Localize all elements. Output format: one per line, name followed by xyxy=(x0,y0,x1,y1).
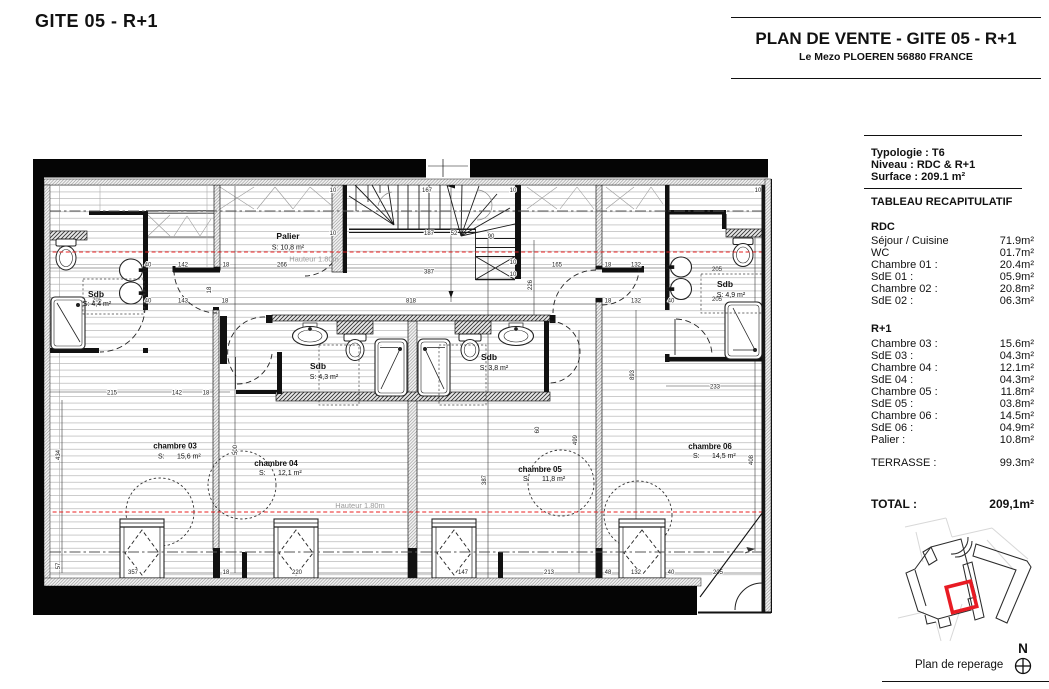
svg-text:S: 4,3 m²: S: 4,3 m² xyxy=(310,374,339,381)
svg-text:10: 10 xyxy=(510,272,517,278)
svg-text:187: 187 xyxy=(424,231,435,237)
svg-text:10: 10 xyxy=(755,188,762,194)
svg-text:Hauteur 1.80m: Hauteur 1.80m xyxy=(335,501,385,510)
svg-text:60: 60 xyxy=(535,426,541,433)
svg-text:18: 18 xyxy=(223,570,230,576)
svg-text:266: 266 xyxy=(277,263,288,269)
svg-text:132: 132 xyxy=(631,263,642,269)
svg-text:S:: S: xyxy=(259,470,266,477)
svg-text:chambre 04: chambre 04 xyxy=(254,459,298,468)
svg-text:165: 165 xyxy=(552,263,563,269)
svg-text:147: 147 xyxy=(458,570,469,576)
svg-text:Sdb: Sdb xyxy=(310,361,326,371)
svg-text:500: 500 xyxy=(233,444,239,455)
svg-text:57: 57 xyxy=(56,562,62,569)
svg-text:48: 48 xyxy=(605,570,612,576)
svg-text:chambre 03: chambre 03 xyxy=(153,442,197,451)
svg-text:S:: S: xyxy=(693,453,700,460)
svg-text:215: 215 xyxy=(107,391,118,397)
svg-text:142: 142 xyxy=(178,263,189,269)
svg-text:132: 132 xyxy=(631,299,642,305)
svg-text:18: 18 xyxy=(203,391,210,397)
svg-text:10: 10 xyxy=(330,188,337,194)
svg-text:18: 18 xyxy=(222,299,229,305)
svg-text:143: 143 xyxy=(178,299,189,305)
svg-text:167: 167 xyxy=(422,188,433,194)
svg-text:18: 18 xyxy=(223,263,230,269)
svg-text:chambre 06: chambre 06 xyxy=(688,442,732,451)
svg-text:387: 387 xyxy=(482,474,488,485)
svg-text:893: 893 xyxy=(630,369,636,380)
svg-text:90: 90 xyxy=(488,234,495,240)
svg-text:40: 40 xyxy=(145,263,152,269)
svg-text:434: 434 xyxy=(56,449,62,460)
svg-text:11,8 m²: 11,8 m² xyxy=(542,476,566,483)
svg-text:18: 18 xyxy=(605,299,612,305)
svg-text:357: 357 xyxy=(128,570,139,576)
svg-text:chambre 05: chambre 05 xyxy=(518,465,562,474)
svg-text:226: 226 xyxy=(528,279,534,290)
svg-text:233: 233 xyxy=(710,385,721,391)
svg-text:S: 4,4 m²: S: 4,4 m² xyxy=(83,301,112,308)
svg-text:S:: S: xyxy=(523,476,530,483)
svg-text:15,6 m²: 15,6 m² xyxy=(177,454,201,461)
svg-text:40: 40 xyxy=(668,570,675,576)
svg-text:Hauteur 1.80m: Hauteur 1.80m xyxy=(289,255,339,264)
svg-text:S: 3,8 m²: S: 3,8 m² xyxy=(480,365,509,372)
svg-text:142: 142 xyxy=(172,391,183,397)
svg-text:205: 205 xyxy=(712,297,723,303)
svg-text:S:: S: xyxy=(158,454,165,461)
svg-text:S: 10,8 m²: S: 10,8 m² xyxy=(272,245,305,252)
svg-text:10: 10 xyxy=(510,260,517,266)
svg-text:18: 18 xyxy=(605,263,612,269)
svg-text:408: 408 xyxy=(749,454,755,465)
svg-text:Sdb: Sdb xyxy=(481,352,497,362)
svg-text:499: 499 xyxy=(573,434,579,445)
svg-text:18: 18 xyxy=(207,286,213,293)
svg-text:40: 40 xyxy=(145,299,152,305)
svg-text:220: 220 xyxy=(292,570,303,576)
svg-text:10: 10 xyxy=(330,231,337,237)
svg-text:387: 387 xyxy=(424,270,435,276)
svg-text:52: 52 xyxy=(451,231,458,237)
svg-text:205: 205 xyxy=(712,267,723,273)
svg-text:Palier: Palier xyxy=(276,231,300,241)
svg-text:10: 10 xyxy=(510,188,517,194)
svg-text:818: 818 xyxy=(406,299,417,305)
svg-text:213: 213 xyxy=(544,570,555,576)
svg-text:40: 40 xyxy=(668,299,675,305)
svg-text:132: 132 xyxy=(631,570,642,576)
svg-text:Sdb: Sdb xyxy=(717,279,733,289)
svg-text:12,1 m²: 12,1 m² xyxy=(278,470,302,477)
svg-text:N: N xyxy=(1018,641,1028,656)
svg-text:14,5 m²: 14,5 m² xyxy=(712,453,736,460)
